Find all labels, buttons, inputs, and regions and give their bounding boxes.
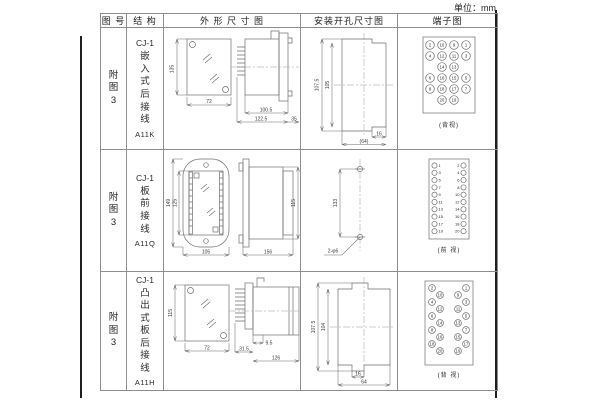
svg-text:5: 5: [464, 76, 467, 81]
svg-text:8: 8: [428, 87, 431, 92]
structure: CJ-1 嵌入式后接线 A11K: [127, 38, 163, 138]
svg-text:8: 8: [430, 327, 433, 332]
dim-label: 107.5: [314, 79, 320, 92]
terminal-pin: 18: [428, 341, 435, 348]
dim-label: 9.5: [265, 341, 272, 347]
terminal-pin: 11: [449, 52, 458, 61]
dim-label: 35: [291, 117, 297, 123]
fig-no-cell: 附图3: [101, 272, 127, 391]
col-header-install: 安装开孔尺寸图: [301, 14, 398, 28]
outline-drawing-a11h: 115 72 9.5 31.5: [165, 273, 300, 388]
terminal-pin: 17: [449, 85, 458, 94]
structure-desc: 板前接线: [140, 186, 150, 236]
install-drawing-a11h: 107.5 104 16 64: [302, 273, 397, 388]
terminal-pin: 6: [428, 313, 435, 320]
terminal-pin: 16: [436, 334, 443, 341]
install-drawing-a11k: 107.5 105 16 (64): [302, 29, 397, 147]
terminal-pin: 19: [449, 96, 458, 105]
svg-text:3: 3: [438, 170, 441, 175]
terminal-pin: 1314: [431, 207, 465, 212]
terminal-pin: 8: [428, 327, 435, 334]
svg-text:14: 14: [437, 320, 442, 325]
svg-text:9: 9: [438, 192, 441, 197]
terminal-pin: 20: [436, 348, 443, 355]
dim-label: (64): [359, 139, 368, 145]
svg-text:9: 9: [456, 292, 459, 297]
terminal-pin: 19: [454, 348, 461, 355]
svg-text:12: 12: [439, 54, 444, 59]
svg-text:7: 7: [438, 185, 441, 190]
dim-label: 133: [333, 199, 339, 208]
terminal-drawing-a11h: 2 4 6 8 18 10 12 14 16 20 9 11 13 15 19 …: [399, 273, 497, 388]
svg-text:1: 1: [438, 163, 441, 168]
terminal-pin: 56: [431, 178, 465, 183]
terminal-pin: 9: [454, 292, 461, 299]
svg-text:6: 6: [428, 76, 431, 81]
terminal-pin: 13: [454, 320, 461, 327]
dim-label: 72: [206, 99, 212, 105]
svg-text:6: 6: [430, 313, 433, 318]
install-cell: 133 2-φ6: [301, 150, 398, 272]
scanned-spec-page: 单位：mm 图 号 结 构 外 形 尺 寸 图 安装开孔尺寸图 端子图 附图3 …: [0, 0, 600, 400]
terminal-drawing-a11k: 2 10 9 1 4 12 11 3 14 13 6 16 15 5 8 18: [399, 29, 497, 147]
dim-label: 115: [168, 309, 174, 317]
terminal-pin: 10: [437, 41, 446, 50]
structure-cell: CJ-1 板前接线 A11Q: [127, 150, 164, 272]
terminal-pin: 17: [462, 341, 469, 348]
svg-text:2: 2: [430, 285, 433, 290]
svg-text:3: 3: [464, 299, 467, 304]
terminal-pin: 1920: [431, 229, 465, 234]
terminal-pin: 15: [449, 74, 458, 83]
dim-label: 149: [166, 199, 172, 208]
install-drawing-a11q: 133 2-φ6: [302, 151, 397, 269]
terminal-pin: 3: [461, 52, 470, 61]
side-view: 115 156: [239, 159, 299, 256]
dim-label: 156: [263, 250, 272, 256]
structure-cell: CJ-1 嵌入式后接线 A11K: [127, 28, 164, 150]
terminal-pin: 12: [431, 163, 465, 168]
structure-cell: CJ-1 凸出式板后接线 A11H: [127, 272, 164, 391]
front-view: 149 125 105: [166, 159, 229, 256]
svg-text:7: 7: [464, 327, 467, 332]
fig-no-cell: 附图3: [101, 28, 127, 150]
svg-text:11: 11: [455, 306, 460, 311]
dim-label: 16: [355, 372, 361, 378]
terminal-pin: 18: [437, 85, 446, 94]
dim-label: 72: [204, 346, 210, 352]
structure-desc: 嵌入式后接线: [140, 51, 150, 126]
svg-text:13: 13: [455, 320, 460, 325]
fig-no-cell: 附图3: [101, 150, 127, 272]
svg-text:4: 4: [428, 54, 431, 59]
model-code: A11Q: [135, 239, 156, 248]
view-caption: (前 视): [437, 246, 460, 254]
model-label: CJ-1: [136, 38, 154, 48]
terminal-pin: 5: [461, 74, 470, 83]
structure: CJ-1 凸出式板后接线 A11H: [127, 275, 163, 388]
svg-text:14: 14: [439, 65, 444, 70]
terminal-pin: 6: [425, 74, 434, 83]
dim-label: 105: [201, 250, 210, 256]
terminal-pin: 1: [461, 41, 470, 50]
terminal-pin: 3: [462, 299, 469, 306]
col-header-outline: 外 形 尺 寸 图: [164, 14, 301, 28]
terminal-drawing-a11q: 12 34 56 78 910 1112 1314 1516 1718 1920…: [399, 151, 497, 269]
dim-label: 104: [321, 323, 327, 332]
terminal-pin: 8: [425, 85, 434, 94]
dim-label: 122.5: [254, 117, 267, 123]
table-row: 附图3 CJ-1 嵌入式后接线 A11K 135: [101, 28, 498, 150]
terminal-pin: 4: [425, 52, 434, 61]
terminal-pin: 14: [436, 320, 443, 327]
svg-text:19: 19: [451, 98, 456, 103]
svg-text:13: 13: [438, 207, 443, 212]
view-caption: (背 视): [437, 371, 460, 379]
svg-text:5: 5: [438, 178, 441, 183]
side-view: 9.5 31.5 126: [229, 278, 299, 362]
svg-text:10: 10: [455, 192, 460, 197]
terminal-pin: 7: [461, 85, 470, 94]
fig-no: 附图3: [109, 312, 119, 350]
svg-text:14: 14: [455, 207, 460, 212]
terminal-cell: 2 4 6 8 18 10 12 14 16 20 9 11 13 15 19 …: [398, 272, 498, 391]
side-view: 100.5 122.5 35: [231, 31, 299, 123]
terminal-pin: 12: [437, 52, 446, 61]
terminal-pin: 78: [431, 185, 465, 190]
outline-drawing-a11k: 135 72 100.5 122.5: [165, 29, 300, 147]
hole-label: 2-φ6: [327, 249, 338, 255]
install-cell: 107.5 104 16 64: [301, 272, 398, 391]
svg-text:10: 10: [439, 43, 444, 48]
col-header-fig-no: 图 号: [101, 14, 127, 28]
terminal-pin: 9: [449, 41, 458, 50]
terminal-pin: 1112: [431, 199, 465, 204]
terminal-pin: 910: [431, 192, 465, 197]
svg-text:15: 15: [438, 214, 443, 219]
svg-text:10: 10: [437, 292, 442, 297]
terminal-pin: 16: [437, 74, 446, 83]
model-label: CJ-1: [136, 275, 154, 285]
outline-cell: 149 125 105 115: [164, 150, 301, 272]
svg-text:20: 20: [455, 229, 460, 234]
front-view: 135 72: [169, 39, 231, 106]
terminal-pin: 4: [428, 299, 435, 306]
svg-text:16: 16: [439, 76, 444, 81]
terminal-pin: 11: [454, 306, 461, 313]
front-view: 115 72: [168, 285, 229, 352]
svg-text:1: 1: [464, 43, 467, 48]
terminal-cell: 12 34 56 78 910 1112 1314 1516 1718 1920…: [398, 150, 498, 272]
page-edge-left: [80, 36, 82, 398]
model-code: A11H: [135, 378, 155, 387]
svg-text:16: 16: [455, 214, 460, 219]
outline-drawing-a11q: 149 125 105 115: [165, 151, 300, 269]
dim-label: 100.5: [259, 108, 272, 114]
terminal-pin: 1718: [431, 221, 465, 226]
svg-text:5: 5: [464, 313, 467, 318]
svg-text:9: 9: [452, 43, 455, 48]
table-row: 附图3 CJ-1 板前接线 A11Q: [101, 150, 498, 272]
model-code: A11K: [135, 130, 155, 139]
svg-text:11: 11: [438, 199, 443, 204]
svg-text:16: 16: [437, 334, 442, 339]
terminal-pin: 5: [462, 313, 469, 320]
dim-label: 115: [291, 199, 297, 207]
svg-text:17: 17: [463, 341, 468, 346]
terminal-pin: 20: [437, 96, 446, 105]
install-cell: 107.5 105 16 (64): [301, 28, 398, 150]
terminal-pin: 1516: [431, 214, 465, 219]
svg-text:1: 1: [464, 285, 467, 290]
header-row: 图 号 结 构 外 形 尺 寸 图 安装开孔尺寸图 端子图: [101, 14, 498, 28]
terminal-pin: 34: [431, 170, 465, 175]
dim-label: 16: [376, 132, 382, 138]
svg-text:18: 18: [429, 341, 434, 346]
svg-text:7: 7: [464, 87, 467, 92]
dim-label: 135: [169, 65, 175, 74]
svg-text:18: 18: [439, 87, 444, 92]
svg-text:15: 15: [455, 334, 460, 339]
terminal-pin: 2: [428, 285, 435, 292]
svg-text:11: 11: [451, 54, 456, 59]
outline-cell: 115 72 9.5 31.5: [164, 272, 301, 391]
svg-text:13: 13: [451, 65, 456, 70]
svg-text:3: 3: [464, 54, 467, 59]
dim-label: 31.5: [239, 347, 249, 353]
svg-text:4: 4: [457, 170, 460, 175]
terminal-pin: 15: [454, 334, 461, 341]
fig-no: 附图3: [109, 192, 119, 230]
terminal-cell: 2 10 9 1 4 12 11 3 14 13 6 16 15 5 8 18: [398, 28, 498, 150]
terminal-pin: 12: [436, 306, 443, 313]
terminal-pin: 7: [462, 327, 469, 334]
table-row: 附图3 CJ-1 凸出式板后接线 A11H 115: [101, 272, 498, 391]
col-header-terminal: 端子图: [398, 14, 498, 28]
svg-text:17: 17: [451, 87, 456, 92]
structure-desc: 凸出式板后接线: [140, 288, 150, 376]
structure: CJ-1 板前接线 A11Q: [127, 173, 163, 248]
svg-text:19: 19: [438, 229, 443, 234]
fig-no: 附图3: [109, 70, 119, 108]
dim-label: 126: [271, 356, 280, 362]
dim-label: 64: [361, 380, 367, 386]
terminal-pin: 10: [436, 292, 443, 299]
svg-text:20: 20: [437, 348, 442, 353]
svg-text:20: 20: [439, 98, 444, 103]
terminal-pin: 1: [462, 285, 469, 292]
svg-text:19: 19: [455, 348, 460, 353]
svg-text:18: 18: [455, 221, 460, 226]
svg-text:2: 2: [428, 43, 431, 48]
outline-cell: 135 72 100.5 122.5: [164, 28, 301, 150]
dim-label: 125: [172, 199, 178, 208]
model-label: CJ-1: [136, 173, 154, 183]
dim-label: 107.5: [311, 321, 317, 334]
terminal-pin: 14: [437, 63, 446, 72]
svg-text:12: 12: [455, 199, 460, 204]
svg-text:4: 4: [430, 299, 433, 304]
svg-text:2: 2: [457, 163, 460, 168]
dim-label: 105: [325, 81, 331, 90]
terminal-pin: 13: [449, 63, 458, 72]
col-header-structure: 结 构: [127, 14, 164, 28]
terminal-pin: 2: [425, 41, 434, 50]
svg-text:17: 17: [438, 221, 443, 226]
view-caption: (背视): [439, 121, 459, 129]
svg-text:15: 15: [451, 76, 456, 81]
svg-text:12: 12: [437, 306, 442, 311]
svg-text:6: 6: [457, 178, 460, 183]
spec-table: 图 号 结 构 外 形 尺 寸 图 安装开孔尺寸图 端子图 附图3 CJ-1 嵌…: [100, 13, 498, 391]
svg-text:8: 8: [457, 185, 460, 190]
